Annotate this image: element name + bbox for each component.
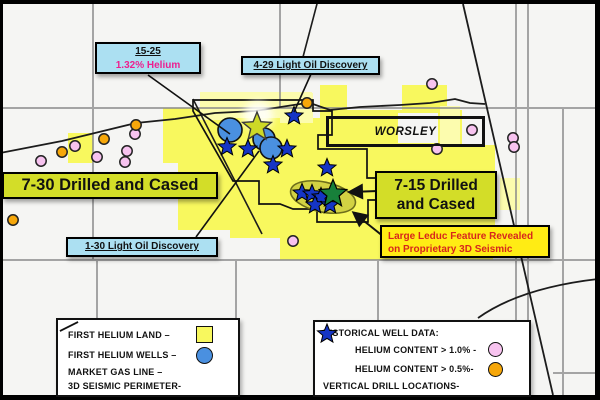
- legend-item-land: FIRST HELIUM LAND –: [68, 326, 230, 343]
- map-canvas: WORSLEY 15-25 1.32% Helium 4-29 Light Oi…: [0, 0, 600, 400]
- callout-1-30: 1-30 Light Oil Discovery: [66, 237, 218, 257]
- historical-well-helium-gt-05: [8, 215, 18, 225]
- historical-well-helium-gt-1: [288, 236, 298, 246]
- blue-star-icon: [315, 322, 339, 344]
- historical-well-helium-gt-05: [131, 120, 141, 130]
- seismic-perimeter-icon: [58, 320, 80, 333]
- historical-well-helium-gt-1: [122, 146, 132, 156]
- legend-seismic-label: 3D SEISMIC PERIMETER-: [68, 381, 181, 391]
- historical-well-helium-gt-05: [99, 134, 109, 144]
- historical-well-helium-gt-05: [302, 98, 312, 108]
- drilled-7-15-line2: and Cased: [377, 195, 495, 214]
- legend-map-symbols: FIRST HELIUM LAND – FIRST HELIUM WELLS –…: [56, 318, 240, 397]
- historical-well-helium-gt-1: [36, 156, 46, 166]
- callout-4-29: 4-29 Light Oil Discovery: [241, 56, 380, 75]
- legend-gas-line-label: MARKET GAS LINE –: [68, 367, 162, 377]
- callout-leduc-feature: Large Leduc Feature Revealed on Propriet…: [380, 225, 550, 258]
- first-helium-well: [218, 118, 242, 142]
- arrow-7-15: [350, 191, 378, 192]
- historical-well-data-label: HISTORICAL WELL DATA:: [323, 328, 439, 338]
- leduc-line1: Large Leduc Feature Revealed: [388, 230, 543, 243]
- orange-circle-icon: [488, 362, 503, 377]
- callout-7-30: 7-30 Drilled and Cased: [2, 172, 218, 199]
- legend-land-label: FIRST HELIUM LAND –: [68, 330, 170, 340]
- legend-wells-label: FIRST HELIUM WELLS –: [68, 350, 177, 360]
- historical-well-helium-gt-05: [57, 147, 67, 157]
- worsley-area-label: WORSLEY: [327, 117, 484, 146]
- legend-item-seismic: 3D SEISMIC PERIMETER-: [68, 381, 230, 391]
- drilled-7-30-text: 7-30 Drilled and Cased: [22, 176, 199, 194]
- legend-item-wells: FIRST HELIUM WELLS –: [68, 347, 230, 364]
- yellow-square-icon: [196, 326, 213, 343]
- leduc-line2: on Proprietary 3D Seismic: [388, 243, 543, 256]
- road-segment-top: [303, 0, 318, 57]
- helium-gt-05-label: HELIUM CONTENT > 0.5%-: [355, 364, 474, 374]
- first-helium-well: [260, 137, 282, 159]
- legend-historical-title: HISTORICAL WELL DATA:: [323, 328, 521, 338]
- well-15-25-title: 15-25: [97, 45, 199, 59]
- legend-item-helium-05: HELIUM CONTENT > 0.5%-: [323, 362, 521, 377]
- vertical-drill-locations-label: VERTICAL DRILL LOCATIONS-: [323, 381, 460, 391]
- historical-well-helium-gt-1: [509, 142, 519, 152]
- callout-15-25: 15-25 1.32% Helium: [95, 42, 201, 74]
- historical-well-helium-gt-1: [120, 157, 130, 167]
- worsley-text: WORSLEY: [375, 126, 437, 138]
- discovery-4-29-text: 4-29 Light Oil Discovery: [254, 60, 368, 71]
- legend-historical-wells: HISTORICAL WELL DATA: HELIUM CONTENT > 1…: [313, 320, 531, 397]
- discovery-1-30-text: 1-30 Light Oil Discovery: [85, 241, 199, 252]
- historical-well-helium-gt-1: [92, 152, 102, 162]
- legend-item-vertical-drills: VERTICAL DRILL LOCATIONS-: [323, 381, 521, 391]
- historical-well-helium-gt-1: [70, 141, 80, 151]
- pink-circle-icon: [488, 342, 503, 357]
- drilled-7-15-line1: 7-15 Drilled: [377, 176, 495, 195]
- legend-item-helium-1: HELIUM CONTENT > 1.0% -: [323, 342, 521, 357]
- callout-7-15: 7-15 Drilled and Cased: [375, 171, 497, 219]
- historical-well-helium-gt-1: [427, 79, 437, 89]
- legend-item-gas-line: MARKET GAS LINE –: [68, 367, 230, 377]
- helium-gt-1-label: HELIUM CONTENT > 1.0% -: [355, 345, 476, 355]
- well-15-25-helium-content: 1.32% Helium: [97, 59, 199, 73]
- road-curve-bottom-right: [478, 279, 598, 318]
- blue-circle-icon: [196, 347, 213, 364]
